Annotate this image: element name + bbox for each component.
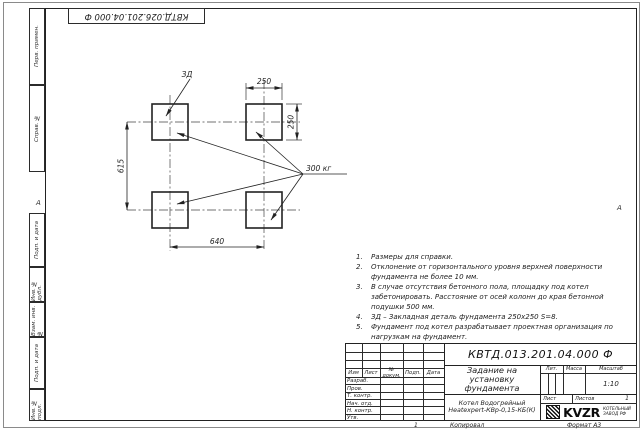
tb-header-podp: Подп.	[403, 368, 423, 377]
kvzr-logo-sub2: ЗАВОД РФ	[603, 412, 631, 417]
tb-header-massa: Масса	[563, 365, 585, 373]
centerlines	[127, 80, 300, 251]
embedded-plates	[152, 104, 282, 228]
drawing-sheet: КВТД.026.201.04.000 Ф Перв. примен. Спра…	[0, 0, 644, 430]
tb-header-dokum: № докум.	[380, 368, 403, 377]
tb-grid-line	[380, 343, 381, 421]
tb-row-razrab: Разраб.	[347, 378, 368, 384]
tb-listov-value: 1	[620, 394, 634, 403]
dim-bottom-label: 640	[210, 237, 225, 246]
tb-header-izm: Изм	[345, 368, 362, 377]
leader-lines	[166, 79, 347, 220]
tb-title-line1: Задание на установку	[444, 366, 540, 383]
tb-row-utv: Утв.	[347, 415, 358, 421]
tb-title-line2: фундамента	[444, 384, 540, 393]
note-item: 4. ЗД – Закладная деталь фундамента 250х…	[356, 312, 630, 322]
tb-logo-cell: KVZR КОТЕЛЬНЫЙ ЗАВОД РФ	[540, 403, 637, 421]
tb-header-lit: Лит.	[540, 365, 563, 373]
tb-product-line2: Heatexpert-КВр-0,15-КБ(К)	[448, 408, 535, 415]
tb-grid-line	[345, 352, 444, 353]
tb-row-nkontr: Н. контр.	[347, 408, 373, 414]
tb-grid-line	[548, 373, 549, 394]
note-number: 5.	[356, 322, 371, 342]
tb-title: Задание на установку фундамента	[444, 365, 540, 394]
tb-grid-line	[423, 343, 424, 421]
tb-row-prov: Пров.	[347, 386, 363, 392]
dim-top-label: 250	[257, 77, 272, 86]
note-text: Размеры для справки.	[371, 252, 453, 262]
kvzr-logo-text: KVZR	[563, 405, 600, 420]
tb-grid-line	[555, 373, 556, 394]
note-number: 3.	[356, 282, 371, 312]
tb-listov-label: Листов	[572, 394, 610, 403]
note-number: 2.	[356, 262, 371, 282]
zd-callout-label: ЗД	[182, 70, 193, 79]
tb-row-nachotd: Нач. отд.	[347, 401, 373, 407]
note-number: 4.	[356, 312, 371, 322]
note-text: ЗД – Закладная деталь фундамента 250х250…	[371, 312, 558, 322]
footer-format: Формат А3	[567, 422, 601, 429]
tb-scale-value: 1:10	[585, 373, 637, 394]
footer-kopiroval: Копировал	[450, 422, 484, 429]
extension-lines	[246, 83, 302, 140]
note-number: 1.	[356, 252, 371, 262]
kvzr-logo-mark-icon	[546, 405, 560, 419]
tb-header-masshtab: Масштаб	[585, 365, 637, 373]
footer-page-mark: 1	[414, 422, 418, 429]
dim-right-label: 250	[287, 115, 296, 130]
tb-header-data: Дата	[423, 368, 444, 377]
note-item: 1. Размеры для справки.	[356, 252, 630, 262]
note-text: Фундамент под котел разрабатывает проект…	[371, 322, 630, 342]
weight-callout-label: 300 кг	[306, 164, 331, 173]
tb-product: Котел Водогрейный Heatexpert-КВр-0,15-КБ…	[444, 394, 540, 421]
dim-left-label: 615	[117, 159, 126, 174]
tb-row-tkontr: Т. контр.	[347, 393, 372, 399]
note-item: 2. Отклонение от горизонтального уровня …	[356, 262, 630, 282]
tb-grid-line	[345, 360, 444, 361]
note-item: 3. В случае отсутствия бетонного пола, п…	[356, 282, 630, 312]
note-text: В случае отсутствия бетонного пола, площ…	[371, 282, 630, 312]
tb-grid-line	[403, 343, 404, 421]
tb-header-list: Лист	[362, 368, 380, 377]
note-text: Отклонение от горизонтального уровня вер…	[371, 262, 630, 282]
tb-doc-number: КВТД.013.201.04.000 Ф	[444, 343, 637, 365]
tb-list-label: Лист	[540, 394, 572, 403]
tb-grid-line	[345, 414, 444, 415]
note-item: 5. Фундамент под котел разрабатывает про…	[356, 322, 630, 342]
notes-block: 1. Размеры для справки. 2. Отклонение от…	[356, 252, 630, 342]
